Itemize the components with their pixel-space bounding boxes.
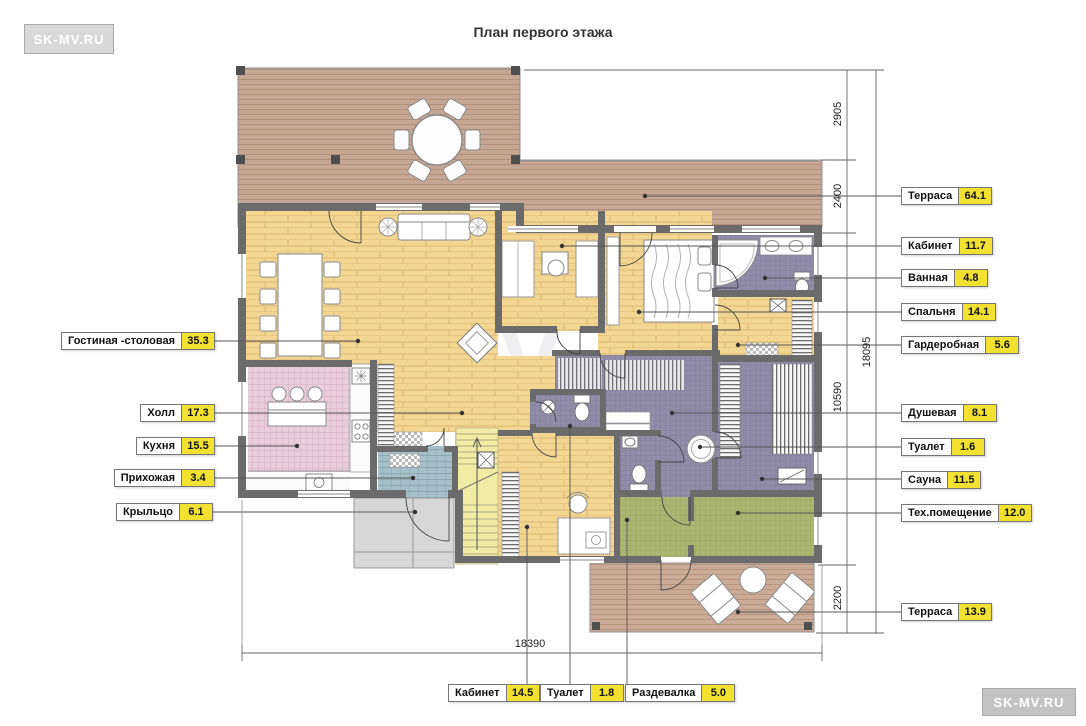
room-label-wardrobe: Гардеробная 5.6 bbox=[901, 336, 1019, 354]
room-label-sauna: Сауна 11.5 bbox=[901, 471, 981, 489]
utility-rooms bbox=[614, 497, 814, 557]
dim-2905: 2905 bbox=[832, 84, 844, 144]
room-label-hall: Холл 17.3 bbox=[140, 404, 215, 422]
room-label-living-dining: Гостиная -столовая 35.3 bbox=[61, 332, 215, 350]
hall-wardrobe bbox=[378, 364, 394, 450]
room-label-shower: Душевая 8.1 bbox=[901, 404, 997, 422]
washbasin-icon bbox=[622, 436, 638, 448]
terrace-top bbox=[236, 66, 822, 227]
plunge-pool-icon bbox=[687, 435, 715, 463]
dim-2200: 2200 bbox=[832, 568, 844, 628]
stove-icon bbox=[352, 420, 370, 442]
terrace-bottom bbox=[590, 563, 815, 632]
room-label-kitchen: Кухня 15.5 bbox=[136, 437, 215, 455]
room-label-entry: Прихожая 3.4 bbox=[114, 469, 215, 487]
dim-18095: 18095 bbox=[861, 322, 873, 382]
dim-2400: 2400 bbox=[832, 166, 844, 226]
dim-18390: 18390 bbox=[500, 638, 560, 650]
bedroom-wardrobe bbox=[607, 237, 619, 325]
wardrobe-closet bbox=[792, 300, 812, 356]
kitchen-island bbox=[268, 387, 326, 426]
floor-plan-page: План первого этажа SK-MV.RU SK-MV.RU MV bbox=[0, 0, 1086, 726]
sink-icon bbox=[352, 368, 370, 384]
room-label-porch: Крыльцо 6.1 bbox=[116, 503, 213, 521]
room-label-wc-bottom: Туалет 1.8 bbox=[540, 684, 624, 702]
room-label-tech-room: Тех.помещение 12.0 bbox=[901, 504, 1032, 522]
room-label-wc-small: Туалет 1.6 bbox=[901, 438, 985, 456]
porch bbox=[354, 498, 454, 568]
sauna-heater-icon bbox=[778, 468, 806, 484]
washer-icon bbox=[306, 474, 332, 491]
dim-10590: 10590 bbox=[832, 367, 844, 427]
toilet-icon bbox=[574, 395, 590, 421]
sofa bbox=[398, 214, 470, 240]
room-label-bedroom: Спальня 14.1 bbox=[901, 303, 996, 321]
room-label-office-bottom: Кабинет 14.5 bbox=[448, 684, 540, 702]
room-label-terrace-bottom: Терраса 13.9 bbox=[901, 603, 992, 621]
toilet-icon bbox=[630, 465, 648, 492]
room-label-office-top: Кабинет 11.7 bbox=[901, 237, 993, 255]
sauna bbox=[718, 357, 814, 493]
room-label-changing-room: Раздевалка 5.0 bbox=[625, 684, 735, 702]
room-label-terrace-top: Терраса 64.1 bbox=[901, 187, 992, 205]
room-label-bathroom: Ванная 4.8 bbox=[901, 269, 988, 287]
bed bbox=[644, 240, 714, 322]
